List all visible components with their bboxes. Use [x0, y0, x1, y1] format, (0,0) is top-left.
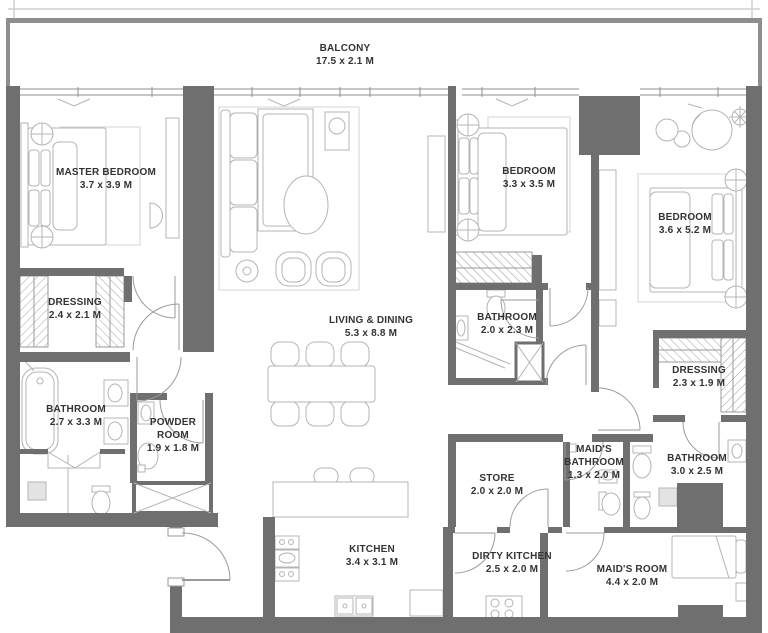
- shower-icon: [659, 488, 677, 506]
- room-label-living-dining: LIVING & DINING 5.3 x 8.8 M: [306, 314, 436, 340]
- luggage-closet-icon: [134, 483, 211, 513]
- room-dims: 2.4 x 2.1 M: [25, 309, 125, 322]
- dining-table-icon: [268, 342, 375, 426]
- room-label-balcony: BALCONY 17.5 x 2.1 M: [285, 42, 405, 68]
- dressing1-door: [133, 304, 179, 350]
- dirty-kitchen-stove-icon: [486, 596, 522, 620]
- room-label-powder-room: POWDER ROOM 1.9 x 1.8 M: [144, 416, 202, 455]
- room-dims: 4.4 x 2.0 M: [577, 576, 687, 589]
- room-name: POWDER ROOM: [144, 416, 202, 442]
- room-label-bedroom-3: BEDROOM 3.6 x 5.2 M: [635, 211, 735, 237]
- room-label-dressing-master: DRESSING 2.4 x 2.1 M: [25, 296, 125, 322]
- living-console-icon: [428, 136, 445, 232]
- room-name: MAID'S BATHROOM: [554, 443, 634, 469]
- room-label-dressing-2: DRESSING 2.3 x 1.9 M: [649, 364, 749, 390]
- room-name: STORE: [452, 472, 542, 485]
- room-name: LIVING & DINING: [306, 314, 436, 327]
- room-label-maids-bathroom: MAID'S BATHROOM 1.3 x 2.0 M: [554, 443, 634, 482]
- room-label-master-bedroom: MASTER BEDROOM 3.7 x 3.9 M: [46, 166, 166, 192]
- hall-door: [546, 345, 586, 385]
- room-name: BEDROOM: [635, 211, 735, 224]
- room-name: BALCONY: [285, 42, 405, 55]
- room-dims: 3.7 x 3.9 M: [46, 179, 166, 192]
- coffee-table-icon: [284, 176, 328, 234]
- swing-door-leaf: [48, 452, 75, 468]
- room-label-bathroom-3: BATHROOM 3.0 x 2.5 M: [647, 452, 747, 478]
- room-name: DIRTY KITCHEN: [457, 550, 567, 563]
- side-table-icon: [325, 112, 349, 150]
- room-label-maids-room: MAID'S ROOM 4.4 x 2.0 M: [577, 563, 687, 589]
- bedroom3-desk-icon: [599, 170, 616, 326]
- room-label-bathroom-master: BATHROOM 2.7 x 3.3 M: [26, 403, 126, 429]
- swing-door-leaf: [75, 452, 100, 468]
- room-name: BEDROOM: [479, 165, 579, 178]
- room-name: KITCHEN: [322, 543, 422, 556]
- kitchen-counter-icon: [410, 590, 443, 616]
- shower-room-fixtures: [28, 452, 110, 523]
- window-band: [20, 87, 746, 97]
- room-label-bathroom-2: BATHROOM 2.0 x 2.3 M: [457, 311, 557, 337]
- shower-screen-icon: [456, 342, 510, 364]
- room-dims: 2.3 x 1.9 M: [649, 377, 749, 390]
- tv-console-icon: [166, 118, 179, 238]
- room-name: BATHROOM: [26, 403, 126, 416]
- room-name: BATHROOM: [457, 311, 557, 324]
- balcony-structure: [8, 0, 760, 18]
- kitchen-island-icon: [273, 468, 408, 517]
- room-dims: 3.6 x 5.2 M: [635, 224, 735, 237]
- kitchen-appliances-icon: [275, 536, 299, 581]
- room-dims: 5.3 x 8.8 M: [306, 327, 436, 340]
- room-name: DRESSING: [649, 364, 749, 377]
- armchair-icon: [276, 252, 351, 286]
- room-label-store: STORE 2.0 x 2.0 M: [452, 472, 542, 498]
- toilet-icon: [602, 493, 620, 515]
- room-dims: 3.0 x 2.5 M: [647, 465, 747, 478]
- room-label-bedroom-2: BEDROOM 3.3 x 3.5 M: [479, 165, 579, 191]
- room-dims: 1.9 x 1.8 M: [144, 442, 202, 455]
- bedroom3-door: [598, 388, 640, 430]
- entry-door: [168, 528, 230, 586]
- floor-lamp-icon: [236, 260, 258, 282]
- room-name: BATHROOM: [647, 452, 747, 465]
- bedroom3-bed-icon: [650, 184, 742, 292]
- room-dims: 2.7 x 3.3 M: [26, 416, 126, 429]
- master-bench-icon: [150, 203, 163, 228]
- room-dims: 3.4 x 3.1 M: [322, 556, 422, 569]
- room-name: DRESSING: [25, 296, 125, 309]
- room-label-dirty-kitchen: DIRTY KITCHEN 2.5 x 2.0 M: [457, 550, 567, 576]
- room-dims: 2.0 x 2.3 M: [457, 324, 557, 337]
- room-dims: 3.3 x 3.5 M: [479, 178, 579, 191]
- room-name: MAID'S ROOM: [577, 563, 687, 576]
- room-name: MASTER BEDROOM: [46, 166, 166, 179]
- room-dims: 17.5 x 2.1 M: [285, 55, 405, 68]
- bidet-icon: [634, 492, 650, 497]
- floor-plan: BALCONY 17.5 x 2.1 M MASTER BEDROOM 3.7 …: [0, 0, 768, 633]
- kitchen-sink-icon: [335, 596, 373, 616]
- shower-icon: [28, 482, 46, 500]
- room-label-kitchen: KITCHEN 3.4 x 3.1 M: [322, 543, 422, 569]
- room-dims: 2.0 x 2.0 M: [452, 485, 542, 498]
- room-dims: 2.5 x 2.0 M: [457, 563, 567, 576]
- bedroom3-armchair-icon: [674, 110, 732, 150]
- room-dims: 1.3 x 2.0 M: [554, 469, 634, 482]
- bedroom3-round-table-icon: [656, 119, 678, 141]
- duct-shaft-icon: [516, 343, 543, 382]
